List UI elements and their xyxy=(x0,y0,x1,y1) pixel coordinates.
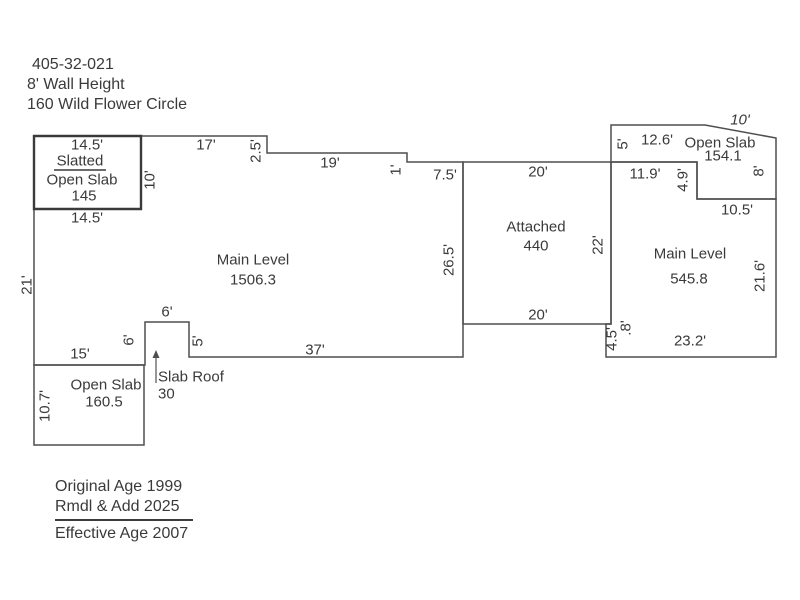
dim-7-5: 7.5' xyxy=(433,167,457,184)
label-open-slab-bottom-left: Open Slab xyxy=(71,377,142,394)
dim-4-9: 4.9' xyxy=(675,168,692,192)
dim-11-9: 11.9' xyxy=(630,166,661,183)
dim-37: 37' xyxy=(305,342,325,359)
area-slab-roof-30: 30 xyxy=(158,386,175,403)
label-main-level-left: Main Level xyxy=(217,252,290,269)
dim-10-slant: 10' xyxy=(730,112,751,129)
property-address: 160 Wild Flower Circle xyxy=(27,95,187,115)
dim-4-5: 4.5' xyxy=(604,327,621,351)
label-slab-roof: Slab Roof xyxy=(158,369,225,386)
dim-12-6: 12.6' xyxy=(641,132,673,149)
dim-10-5: 10.5' xyxy=(721,202,753,219)
dim-8: 8' xyxy=(751,165,768,176)
dim-6-top: 6' xyxy=(161,304,172,321)
dim-22: 22' xyxy=(590,235,607,255)
area-slatted-145: 145 xyxy=(71,188,96,205)
wall-height-note: 8' Wall Height xyxy=(27,75,187,95)
effective-age: Effective Age 2007 xyxy=(55,524,193,544)
remodel-add-year: Rmdl & Add 2025 xyxy=(55,497,193,521)
dim-15: 15' xyxy=(70,346,90,363)
area-open-slab-154-1: 154.1 xyxy=(704,148,742,165)
label-main-level-right: Main Level xyxy=(654,246,727,263)
dim-10-7: 10.7' xyxy=(37,390,54,422)
age-info-block: Original Age 1999 Rmdl & Add 2025 Effect… xyxy=(55,477,193,544)
dim-2-5: 2.5' xyxy=(248,139,265,163)
dim-20-bottom: 20' xyxy=(528,307,548,324)
dim-23-2: 23.2' xyxy=(674,333,706,350)
dim-17: 17' xyxy=(196,137,216,154)
property-header: 405-32-021 8' Wall Height 160 Wild Flowe… xyxy=(27,55,187,115)
property-sketch-page: 14.5'SlattedOpen Slab14510'14.5'17'2.5'1… xyxy=(0,0,800,600)
label-slatted: Slatted xyxy=(57,153,104,170)
original-age: Original Age 1999 xyxy=(55,477,193,497)
dim-6-left: 6' xyxy=(121,334,138,345)
dim-14-5-top: 14.5' xyxy=(71,137,103,154)
dim-14-5-bottom: 14.5' xyxy=(71,210,103,227)
dim-21-6: 21.6' xyxy=(752,260,769,292)
dim-10-slatted: 10' xyxy=(142,170,159,190)
label-attached: Attached xyxy=(506,219,565,236)
area-main-right-545-8: 545.8 xyxy=(670,271,708,288)
label-open-slab-slatted: Open Slab xyxy=(47,172,118,189)
area-attached-440: 440 xyxy=(523,238,548,255)
dim-5-top-right: 5' xyxy=(615,138,632,149)
area-main-left-1506-3: 1506.3 xyxy=(230,272,276,289)
dim-26-5: 26.5' xyxy=(441,244,458,276)
area-open-slab-160-5: 160.5 xyxy=(85,394,123,411)
parcel-number: 405-32-021 xyxy=(27,55,187,75)
dim-5-bump: 5' xyxy=(190,335,207,346)
dim-1: 1' xyxy=(388,164,405,175)
dim-21: 21' xyxy=(19,275,36,295)
dim-20-top: 20' xyxy=(528,164,548,181)
slab-roof-arrow-head xyxy=(153,350,160,358)
dim-19: 19' xyxy=(320,155,340,172)
